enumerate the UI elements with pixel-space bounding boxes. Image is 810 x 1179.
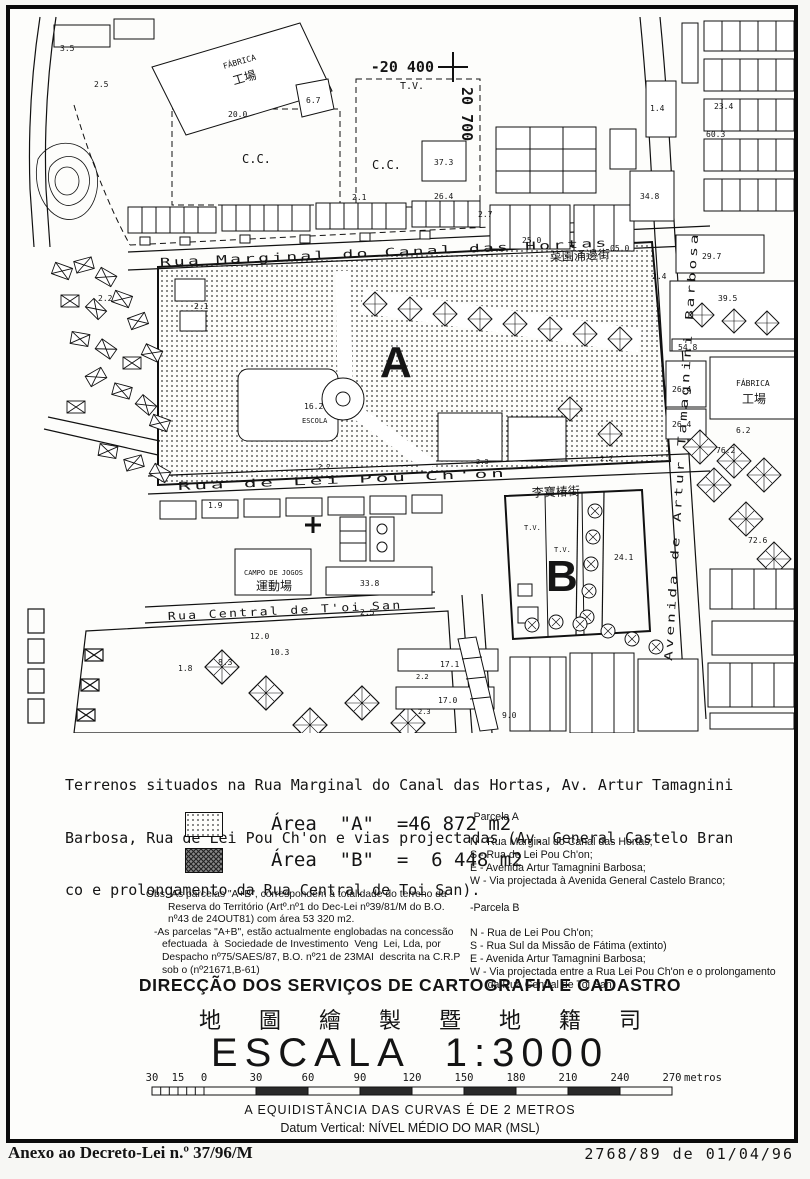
map-label: 2.1 (352, 193, 367, 202)
map-label: 34.8 (640, 192, 659, 201)
obs-line: Reserva do Território (Artº.nº1 do Dec-L… (146, 902, 486, 915)
obs-line: efectuada à Sociedade de Investimento Ve… (146, 939, 486, 952)
map-label: CAMPO DE JOGOS (244, 569, 303, 577)
map-label: 1.8 (178, 664, 193, 673)
scalebar-tick: 90 (354, 1072, 367, 1084)
map-label: 2.4 (652, 272, 667, 281)
map-label: 2.1 (194, 302, 209, 311)
datum-note: Datum Vertical: NÍVEL MÉDIO DO MAR (MSL) (50, 1121, 770, 1135)
map-label: C.C. (242, 152, 271, 166)
map-label: 運動場 (256, 579, 292, 593)
map-sheet-frame: -20 400 T.V. 20 700 Rua Marginal do Cana… (6, 5, 798, 1143)
street-label-marginal-zh: 菜園涌邊街 (550, 247, 611, 264)
map-label: 工場 (742, 392, 766, 406)
scale-bar: 30 15 0 30 60 90 120 150 180 210 240 270… (138, 1071, 738, 1105)
map-label: 25.0 (522, 236, 541, 245)
map-label: 17.0 (438, 696, 457, 705)
scalebar-unit: metros (684, 1072, 722, 1084)
area-a-swatch (185, 812, 223, 837)
scalebar-tick: 270 (663, 1072, 682, 1084)
map-label: 10.3 (270, 648, 289, 657)
parcel-a-marker: A (380, 338, 412, 387)
map-label: C.C. (372, 158, 401, 172)
parcel-b-marker: B (546, 552, 578, 601)
scalebar-tick: 120 (403, 1072, 422, 1084)
map-label: 05.0 (610, 244, 629, 253)
scalebar-tick: 240 (611, 1072, 630, 1084)
scalebar-tick: 15 (172, 1072, 185, 1084)
map-label: 2.7 (478, 210, 493, 219)
grid-tv-label: T.V. (400, 81, 424, 92)
map-label: 2.2 (98, 294, 113, 303)
map-label: 2.5 (360, 608, 375, 617)
scale-title: ESCALA 1:3000 (50, 1031, 770, 1076)
scalebar-tick: 30 (146, 1072, 159, 1084)
map-label: 6.2 (736, 426, 751, 435)
scalebar-tick: 180 (507, 1072, 526, 1084)
map-label: 2.3 (476, 458, 489, 466)
map-label: 1.9 (208, 501, 223, 510)
map-label: 6.7 (306, 96, 321, 105)
map-label: FÁBRICA (736, 377, 770, 388)
parcela-b-title: -Parcela B (470, 902, 780, 915)
map-label: 9.0 (502, 711, 517, 720)
map-label: 33.8 (360, 579, 379, 588)
map-label: 26.4 (434, 192, 453, 201)
map-label: 72.6 (748, 536, 767, 545)
scalebar-tick: 0 (201, 1072, 207, 1084)
map-label: 1.4 (650, 104, 665, 113)
map-label: 2.3 (418, 708, 431, 716)
map-label: 20.0 (228, 110, 247, 119)
parcela-a-item: S - Rua de Lei Pou Ch'on; (470, 849, 780, 862)
observations: Obs:-As parcelas "A+B", correspondem à t… (146, 889, 486, 977)
legend-area-a: Área "A" =46 872 m2 (185, 811, 511, 837)
equidistance-note: A EQUIDISTÂNCIA DAS CURVAS É DE 2 METROS (50, 1103, 770, 1117)
scalebar-tick: 150 (455, 1072, 474, 1084)
cadastral-map: -20 400 T.V. 20 700 Rua Marginal do Cana… (10, 9, 794, 733)
footer-reference: 2768/89 de 01/04/96 (584, 1145, 794, 1163)
description-line: Terrenos situados na Rua Marginal do Can… (65, 777, 733, 795)
obs-line: Obs:-As parcelas "A+B", correspondem à t… (146, 889, 486, 902)
obs-line: nº43 de 24OUT81) com área 53 320 m2. (146, 914, 486, 927)
map-label: 3.5 (60, 44, 75, 53)
map-label: 37.3 (434, 158, 453, 167)
map-canvas: -20 400 T.V. 20 700 Rua Marginal do Cana… (10, 9, 794, 733)
map-label: 2.2 (318, 463, 331, 471)
parcela-a-item: W - Via projectada à Avenida General Cas… (470, 875, 780, 888)
parcela-a-title: -Parcela A (470, 811, 780, 824)
map-label: 2.5 (94, 80, 109, 89)
scalebar-ruler (152, 1087, 672, 1095)
map-label: 23.4 (714, 102, 733, 111)
scalebar-tick: 210 (559, 1072, 578, 1084)
parcela-a-item: N - Rua Marginal do Canal das Hortas; (470, 836, 780, 849)
map-label: T.V. (554, 546, 571, 554)
map-label: 39.5 (718, 294, 737, 303)
parcel-confrontations: -Parcela A N - Rua Marginal do Canal das… (470, 811, 780, 992)
map-label: 24.1 (614, 553, 633, 562)
parcela-b-item: E - Avenida Artur Tamagnini Barbosa; (470, 953, 780, 966)
map-label: 29.7 (702, 252, 721, 261)
parcela-b-item: N - Rua de Lei Pou Ch'on; (470, 927, 780, 940)
parcela-b-item: S - Rua Sul da Missão de Fátima (extinto… (470, 940, 780, 953)
map-label: 12.0 (250, 632, 269, 641)
footer-decree: Anexo ao Decreto-Lei n.º 37/96/M (8, 1143, 253, 1163)
map-label: 26.4 (672, 385, 691, 394)
org-title: DIRECÇÃO DOS SERVIÇOS DE CARTOGRAFIA E C… (50, 975, 770, 996)
map-label: 54.8 (678, 343, 697, 352)
map-label: T.V. (524, 524, 541, 532)
map-label: 2.2 (416, 673, 429, 681)
street-label-leipou-zh: 李寶椿街 (532, 483, 581, 500)
grid-x-label: -20 400 (371, 58, 434, 76)
map-label: 16.2 (304, 402, 323, 411)
scalebar-tick: 30 (250, 1072, 263, 1084)
map-label: 26.4 (672, 420, 691, 429)
map-label: 17.1 (440, 660, 459, 669)
parcela-a-item: E - Avenida Artur Tamagnini Barbosa; (470, 862, 780, 875)
cadastral-map-sheet: { "map": { "grid": {"x": "-20 400", "tv"… (0, 0, 810, 1179)
area-b-swatch (185, 848, 223, 873)
obs-line: Despacho nº75/SAES/87, B.O. nº21 de 23MA… (146, 952, 486, 965)
map-label: 2.2 (600, 455, 613, 463)
obs-line: -As parcelas "A+B", estão actualmente en… (146, 927, 486, 940)
grid-y-label: 20 700 (458, 87, 476, 141)
map-label: 76.2 (716, 446, 735, 455)
map-label: ESCOLA (302, 417, 328, 425)
map-label: 8.3 (218, 658, 233, 667)
scalebar-tick: 60 (302, 1072, 315, 1084)
map-label: 60.3 (706, 130, 725, 139)
